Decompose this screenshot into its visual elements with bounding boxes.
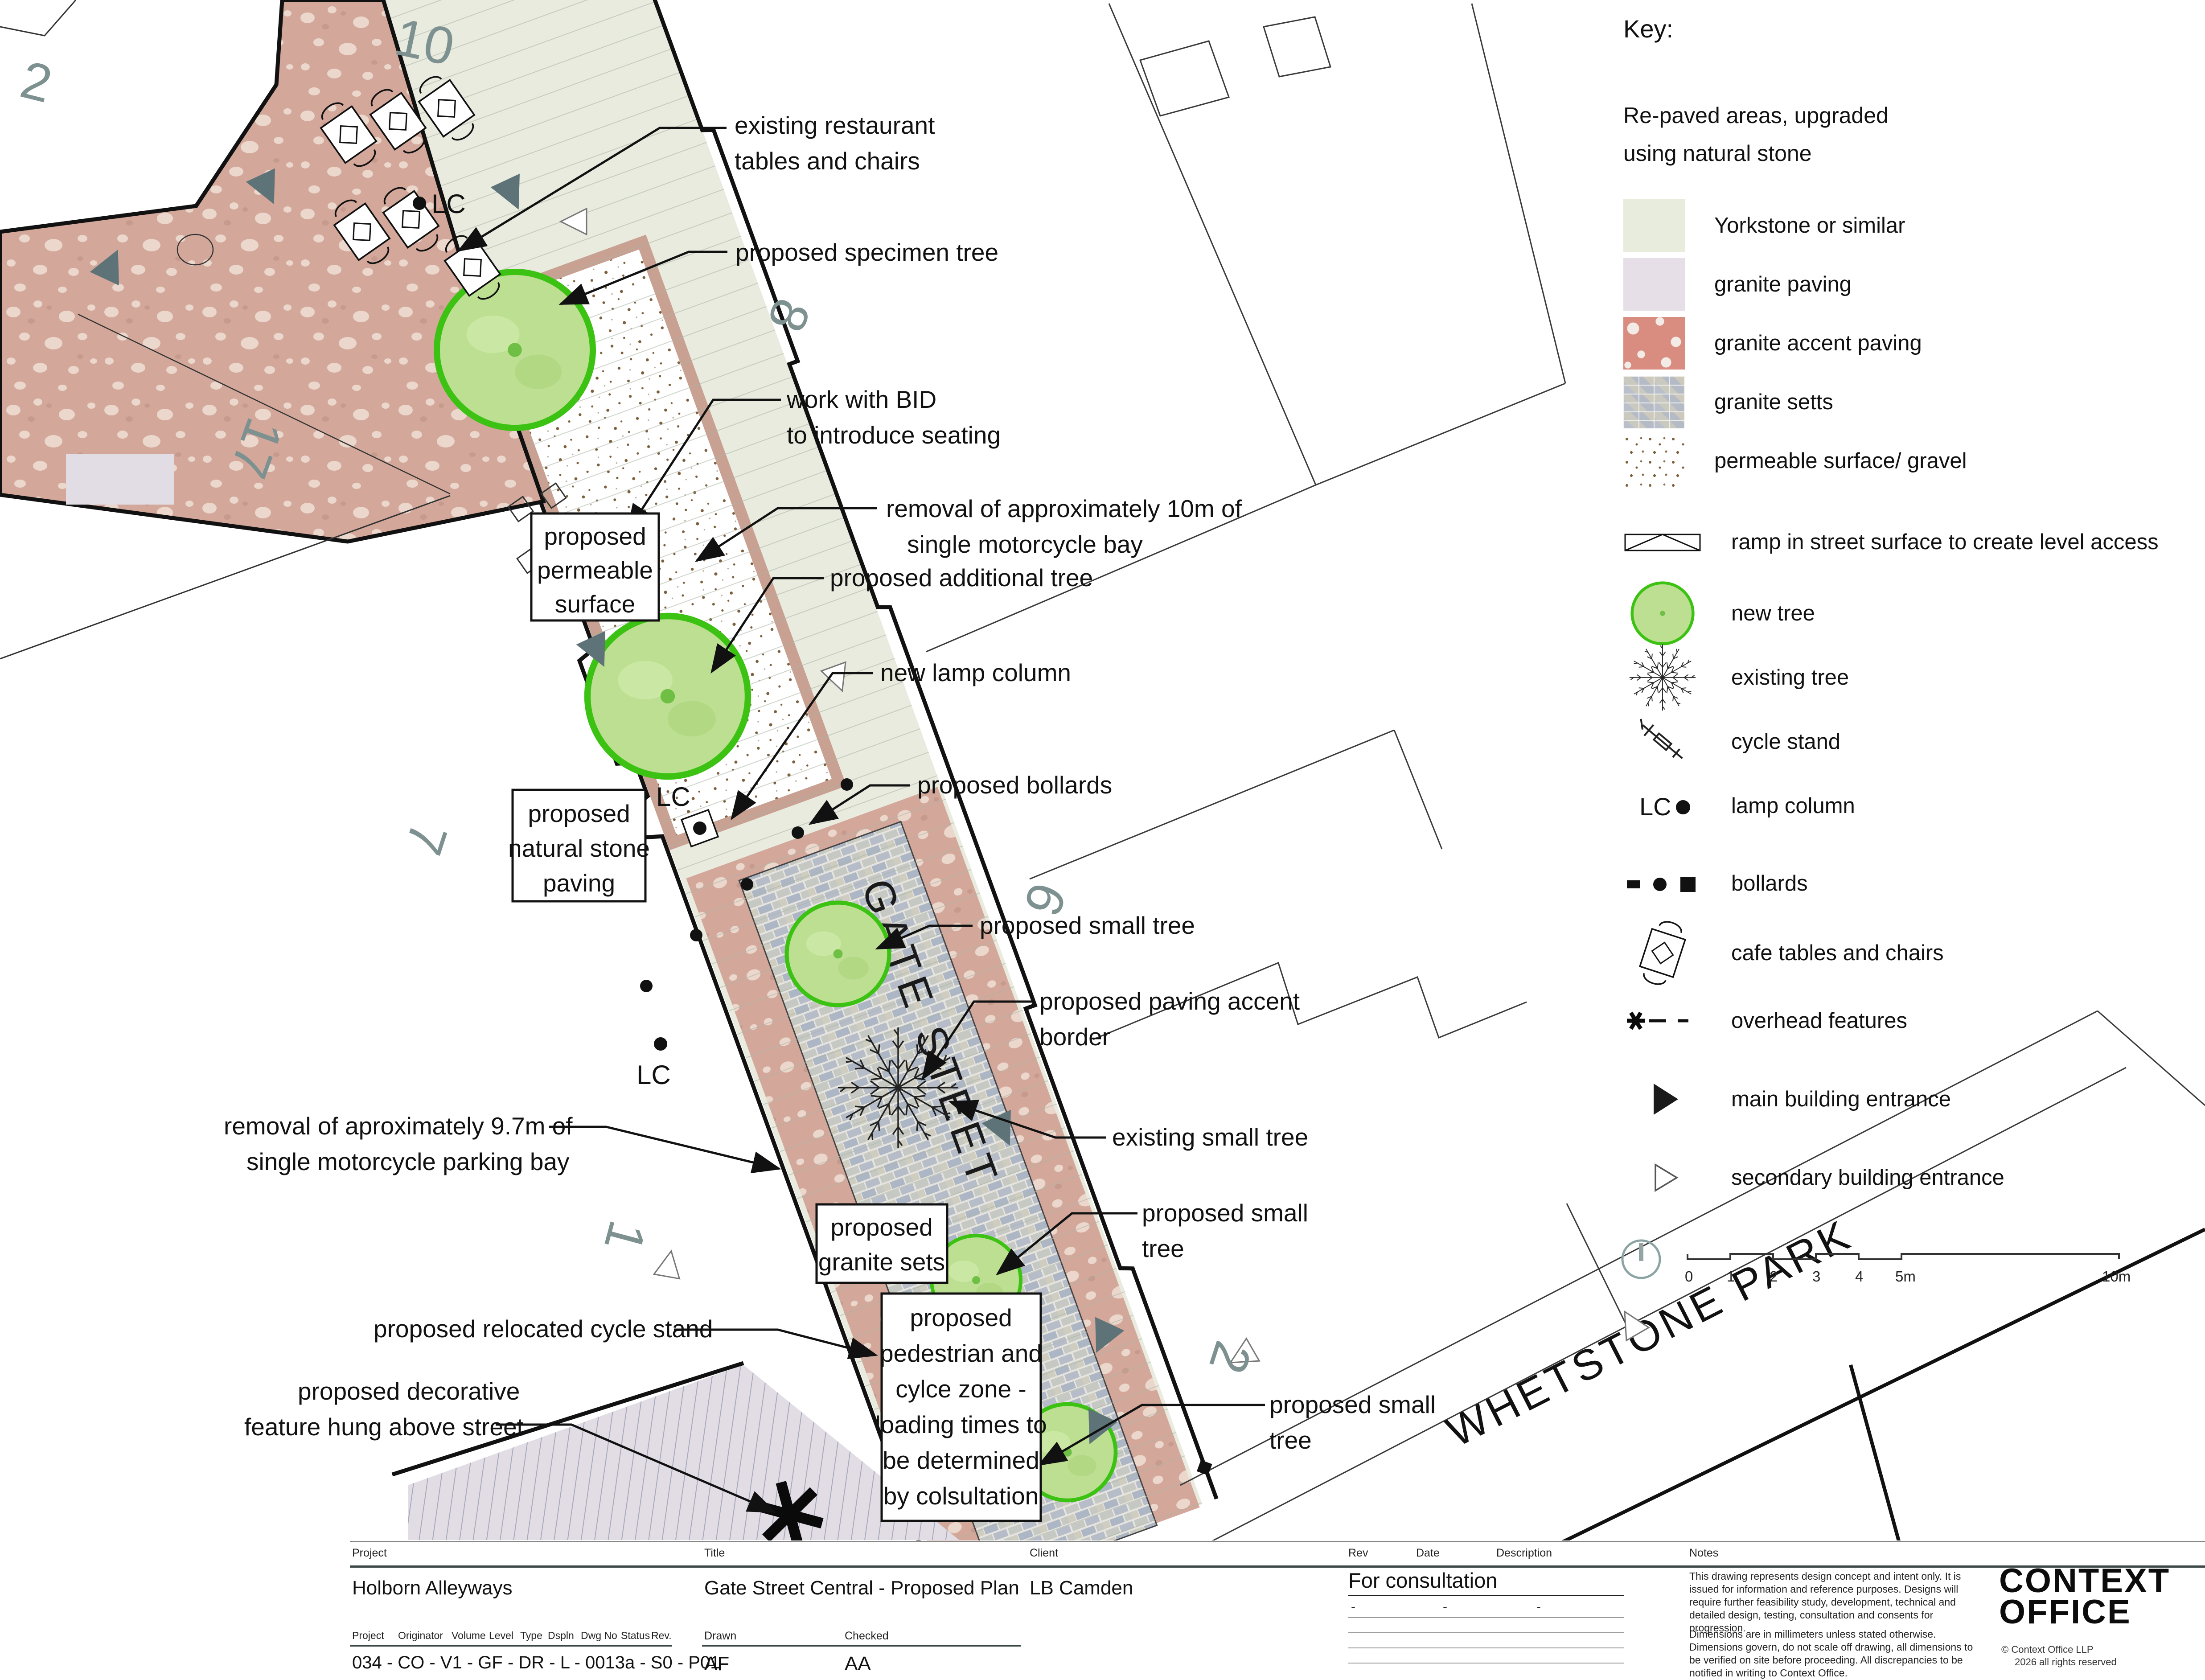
key-item-cafe-tables: cafe tables and chairs	[1623, 924, 2204, 982]
checked-value: AA	[845, 1653, 871, 1675]
building-numeral: 2	[1198, 1335, 1263, 1380]
svg-text:paving: paving	[543, 869, 615, 897]
main-entrance-icon	[1623, 1070, 1702, 1128]
svg-text:single motorcycle parking bay: single motorcycle parking bay	[246, 1148, 570, 1175]
svg-text:proposed: proposed	[910, 1304, 1012, 1331]
yorkstone-swatch	[1623, 199, 1685, 252]
drawn-value: AF	[704, 1653, 729, 1675]
ramp-icon	[1623, 513, 1702, 571]
consultation-status: For consultation	[1348, 1568, 1497, 1593]
bollards-icon	[1623, 854, 1702, 912]
proposed-specimen-tree	[437, 272, 593, 428]
annotation-restaurant: existing restaurant	[735, 111, 935, 139]
building-numeral: 2	[15, 50, 58, 114]
title-value: Gate Street Central - Proposed Plan	[704, 1577, 1019, 1599]
key-item-bollards: bollards	[1623, 854, 2204, 912]
key-item-existing-tree: existing tree	[1623, 649, 2204, 707]
svg-text:loading times to: loading times to	[875, 1411, 1047, 1438]
granite-paving-swatch	[1623, 258, 1685, 311]
annotation-additional-tree: proposed additional tree	[830, 564, 1093, 591]
title-label: Title	[704, 1547, 725, 1560]
svg-text:tables and chairs: tables and chairs	[735, 147, 920, 175]
key-item-ramp: ramp in street surface to create level a…	[1623, 513, 2204, 571]
key-item-granite-accent: granite accent paving	[1623, 317, 2204, 370]
svg-text:LC: LC	[431, 189, 466, 219]
svg-text:proposed: proposed	[830, 1213, 932, 1241]
boundary-line	[0, 0, 76, 36]
annotation-bollards: proposed bollards	[917, 771, 1112, 799]
svg-text:natural stone: natural stone	[508, 834, 650, 862]
svg-text:by colsultation: by colsultation	[883, 1482, 1039, 1510]
svg-text:pedestrian and: pedestrian and	[880, 1339, 1042, 1367]
svg-text:1: 1	[1727, 1268, 1735, 1285]
svg-text:border: border	[1039, 1023, 1110, 1051]
lamp-column-icon: LC	[1623, 777, 1702, 835]
svg-text:2: 2	[1770, 1268, 1778, 1285]
new-tree-icon	[1623, 584, 1702, 642]
svg-text:proposed: proposed	[544, 522, 646, 550]
svg-text:4: 4	[1855, 1268, 1863, 1285]
granite-accent-swatch	[1623, 317, 1685, 370]
notes-paragraph-2: Dimensions are in millimeters unless sta…	[1689, 1628, 1983, 1680]
svg-text:permeable: permeable	[537, 556, 653, 584]
key-item-main-entrance: main building entrance	[1623, 1070, 2204, 1128]
svg-text:5m: 5m	[1895, 1268, 1916, 1285]
key-item-granite-paving: granite paving	[1623, 258, 2204, 311]
svg-text:cylce zone -: cylce zone -	[895, 1375, 1026, 1403]
notes-label: Notes	[1689, 1547, 1718, 1560]
key-item-permeable: permeable surface/ gravel	[1623, 435, 2204, 487]
date-label: Date	[1416, 1547, 1440, 1560]
copyright-line: © Context Office LLP	[2001, 1644, 2094, 1655]
svg-text:feature hung above street: feature hung above street	[244, 1413, 524, 1441]
client-label: Client	[1030, 1547, 1058, 1560]
svg-text:be determined: be determined	[883, 1446, 1039, 1474]
svg-text:0: 0	[1685, 1268, 1693, 1285]
svg-text:to introduce seating: to introduce seating	[787, 421, 1001, 449]
annotation-removal-97m: removal of aproximately 9.7m of	[224, 1112, 573, 1140]
svg-text:10m: 10m	[2102, 1268, 2131, 1285]
project-value: Holborn Alleyways	[352, 1577, 513, 1599]
cycle-stand-icon	[1623, 713, 1702, 771]
svg-text:3: 3	[1812, 1268, 1820, 1285]
existing-tree-icon	[1623, 649, 1702, 707]
rights-line: 2026 all rights reserved	[2015, 1656, 2117, 1668]
permeable-swatch	[1623, 435, 1685, 487]
checked-label: Checked	[845, 1630, 889, 1643]
plaza-granite-strip	[66, 454, 174, 505]
context-office-logo: CONTEXT OFFICE	[1999, 1565, 2170, 1628]
rev-dash: -	[1351, 1599, 1355, 1614]
description-label: Description	[1496, 1547, 1552, 1560]
rev-label: Rev	[1348, 1547, 1368, 1560]
key-item-cycle-stand: cycle stand	[1623, 713, 2204, 771]
drawing-number: 034 - CO - V1 - GF - DR - L - 0013a - S0…	[352, 1653, 720, 1673]
drawn-label: Drawn	[704, 1630, 736, 1643]
cafe-tables-icon	[1623, 924, 1702, 982]
secondary-entrance-icon	[1623, 1149, 1702, 1207]
building-numeral: 1	[593, 1215, 657, 1258]
key-item-overhead: overhead features	[1623, 992, 2204, 1050]
lamp-column-3: LC	[636, 1037, 671, 1090]
annotation-small-tree-1: proposed small tree	[980, 912, 1195, 939]
annotation-bid: work with BID	[786, 386, 936, 413]
annotation-existing-tree: existing small tree	[1112, 1123, 1308, 1151]
building-numeral: 10	[390, 7, 460, 77]
svg-text:tree: tree	[1269, 1426, 1312, 1454]
annotation-specimen-tree: proposed specimen tree	[735, 238, 998, 266]
annotation-relocated-cycle-stand: proposed relocated cycle stand	[374, 1315, 713, 1343]
svg-text:LC: LC	[1639, 793, 1671, 821]
numbering-header: Project	[352, 1630, 384, 1642]
overhead-features-icon	[1623, 992, 1702, 1050]
notes-paragraph-1: This drawing represents design concept a…	[1689, 1570, 1983, 1635]
client-value: LB Camden	[1030, 1577, 1133, 1599]
key-item-new-tree: new tree	[1623, 584, 2204, 642]
key-panel: Key: Re-paved areas, upgraded using natu…	[1617, 8, 2204, 1307]
annotation-small-tree-3: proposed small	[1269, 1391, 1436, 1418]
svg-text:LC: LC	[656, 782, 690, 812]
svg-text:granite sets: granite sets	[818, 1248, 945, 1276]
svg-text:LC: LC	[636, 1060, 671, 1090]
key-item-yorkstone: Yorkstone or similar	[1623, 199, 2204, 252]
key-item-lamp-column: LC lamp column	[1623, 777, 2204, 835]
granite-setts-swatch	[1623, 376, 1685, 428]
annotation-small-tree-2: proposed small	[1142, 1199, 1308, 1227]
key-intro: Re-paved areas, upgraded using natural s…	[1623, 97, 2204, 173]
svg-text:single motorcycle bay: single motorcycle bay	[907, 530, 1143, 558]
proposed-small-tree-1	[787, 903, 889, 1005]
building-numeral: 7	[394, 816, 459, 862]
drawing-sheet: GATE STEET	[0, 0, 2205, 1680]
svg-text:tree: tree	[1142, 1235, 1184, 1262]
header-rule	[350, 1565, 2205, 1568]
key-title: Key:	[1623, 14, 2204, 43]
annotation-decorative-feature: proposed decorative	[298, 1377, 520, 1405]
svg-text:surface: surface	[555, 590, 635, 618]
title-block: Project Holborn Alleyways Project Origin…	[350, 1541, 2205, 1680]
scale-bar: 0 1 2 3 4 5m 10m	[1621, 1233, 2204, 1307]
project-label: Project	[352, 1547, 387, 1560]
svg-text:proposed: proposed	[528, 800, 630, 827]
key-item-granite-setts: granite setts	[1623, 376, 2204, 428]
secondary-entrance-marker	[654, 1249, 684, 1278]
proposed-additional-tree	[587, 616, 748, 776]
key-item-secondary-entrance: secondary building entrance	[1623, 1149, 2204, 1207]
annotation-lamp-column: new lamp column	[880, 659, 1071, 686]
annotation-removal-10m: removal of approximately 10m of	[886, 495, 1242, 522]
annotation-accent-border: proposed paving accent	[1039, 987, 1300, 1015]
